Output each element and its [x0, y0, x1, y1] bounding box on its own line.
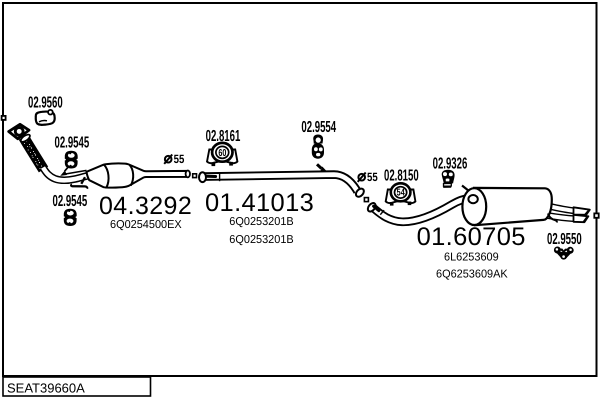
svg-text:04.3292: 04.3292 — [99, 192, 192, 220]
svg-text:02.9326: 02.9326 — [433, 155, 468, 172]
svg-text:02.8161: 02.8161 — [206, 128, 241, 145]
svg-text:02.9554: 02.9554 — [301, 119, 336, 136]
svg-text:6Q6253609AK: 6Q6253609AK — [436, 269, 508, 281]
svg-text:02.9560: 02.9560 — [28, 94, 63, 111]
svg-text:02.8150: 02.8150 — [384, 168, 419, 185]
svg-text:6Q0253201B: 6Q0253201B — [229, 234, 294, 246]
svg-text:02.9545: 02.9545 — [53, 193, 88, 210]
svg-text:6Q0254500EX: 6Q0254500EX — [110, 219, 182, 231]
svg-text:54: 54 — [397, 188, 405, 199]
svg-text:01.60705: 01.60705 — [417, 223, 526, 251]
svg-text:02.9545: 02.9545 — [55, 134, 90, 151]
svg-text:SEAT39660A: SEAT39660A — [7, 380, 85, 395]
svg-text:01.41013: 01.41013 — [205, 189, 314, 217]
svg-text:6L6253609: 6L6253609 — [444, 252, 499, 264]
svg-text:6Q0253201B: 6Q0253201B — [229, 216, 294, 228]
svg-text:55: 55 — [174, 152, 185, 166]
svg-text:55: 55 — [367, 170, 378, 184]
svg-text:02.9550: 02.9550 — [547, 231, 582, 248]
svg-text:60: 60 — [218, 148, 226, 159]
